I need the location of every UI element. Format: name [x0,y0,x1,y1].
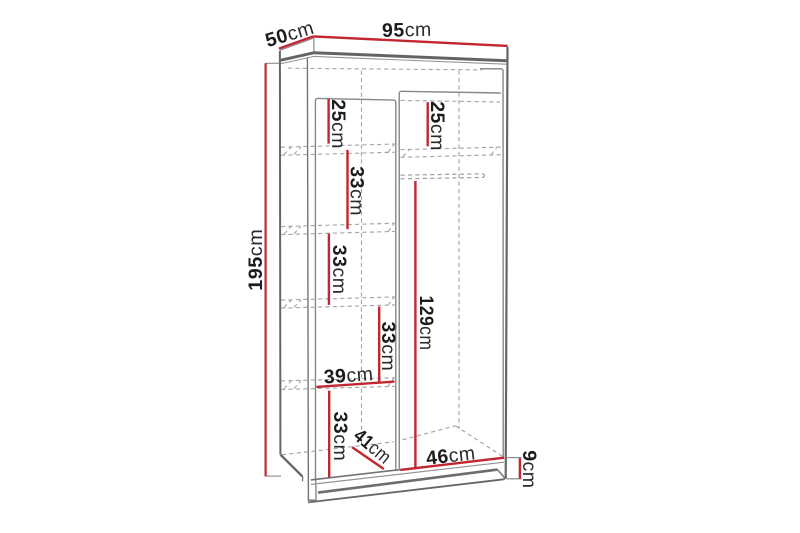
svg-text:195cm: 195cm [245,229,267,291]
svg-text:33cm: 33cm [377,322,399,372]
svg-text:39cm: 39cm [323,363,374,388]
svg-text:25cm: 25cm [327,99,349,149]
svg-text:25cm: 25cm [426,101,448,151]
svg-text:129cm: 129cm [415,296,437,351]
svg-text:9cm: 9cm [518,450,540,488]
svg-text:33cm: 33cm [346,166,368,216]
svg-text:33cm: 33cm [328,245,350,295]
svg-text:95cm: 95cm [382,19,432,42]
svg-text:33cm: 33cm [329,412,351,462]
